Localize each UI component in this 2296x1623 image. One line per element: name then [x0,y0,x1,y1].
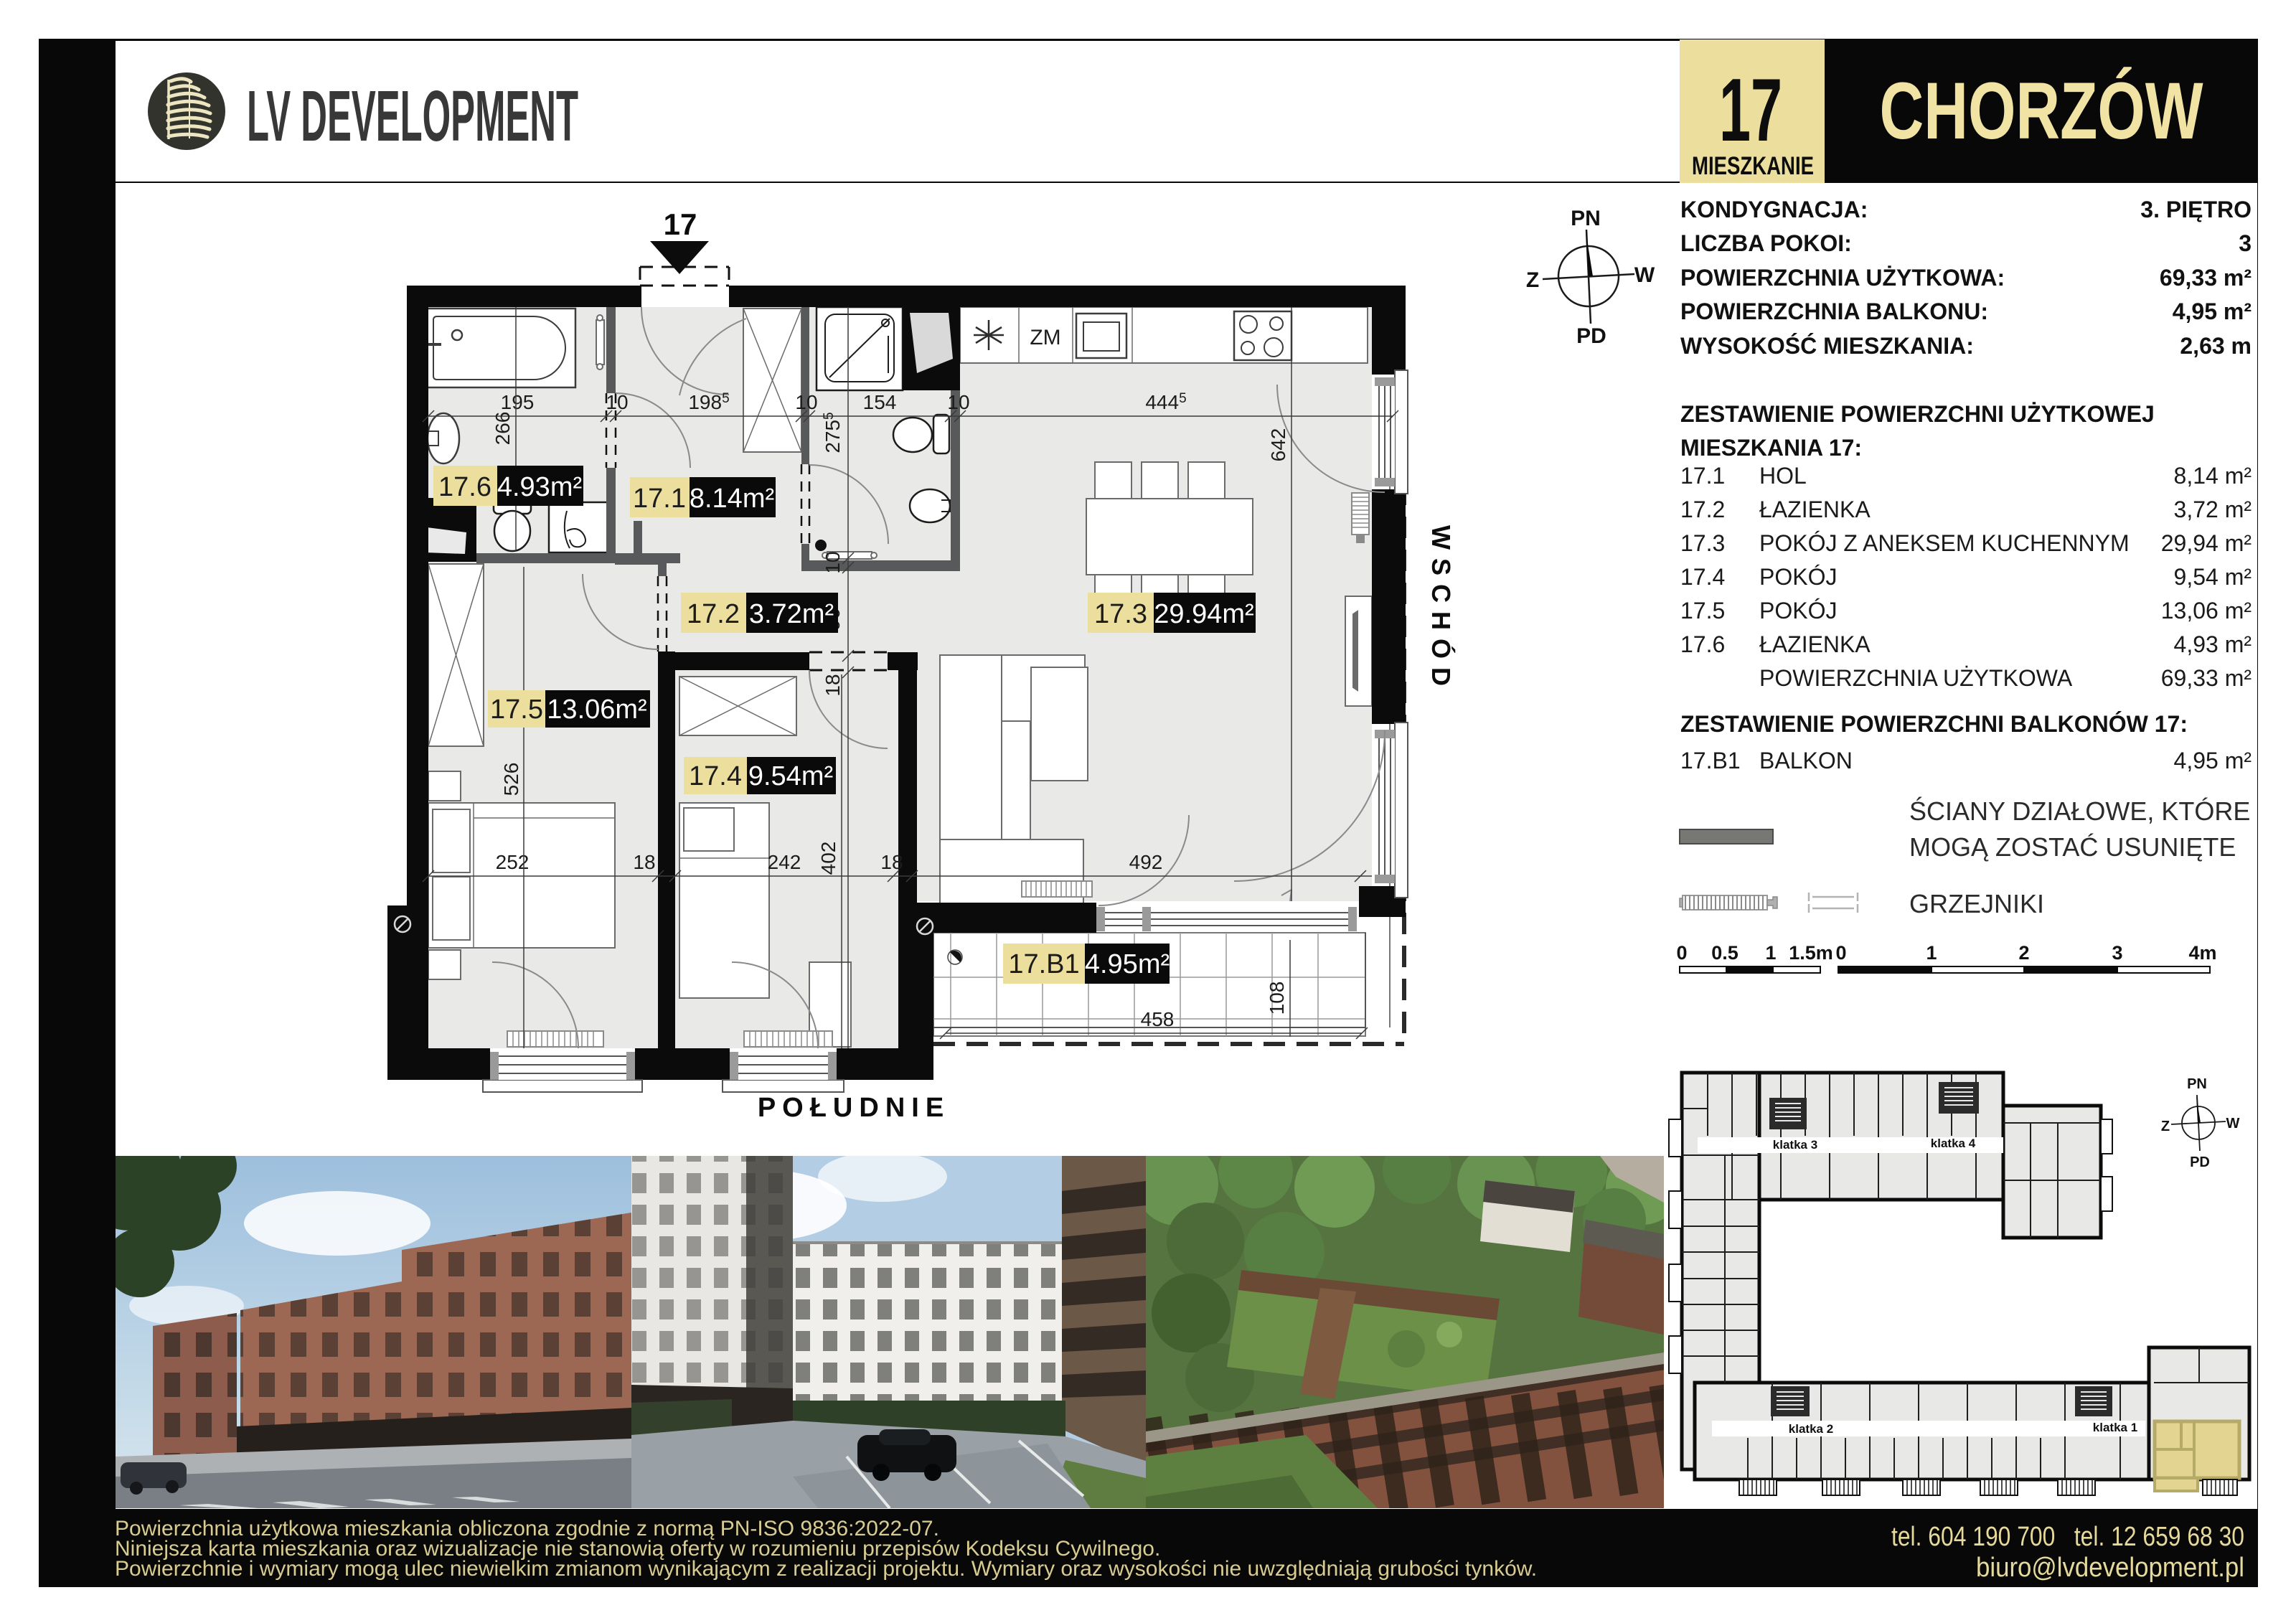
svg-text:17.5: 17.5 [490,695,543,725]
svg-text:klatka 1: klatka 1 [2093,1421,2137,1434]
svg-text:17.1: 17.1 [1680,463,1725,489]
svg-text:0.5: 0.5 [1711,942,1739,964]
svg-text:PD: PD [1576,324,1606,348]
svg-text:17.B1: 17.B1 [1008,949,1079,979]
svg-text:18: 18 [880,851,903,873]
svg-text:klatka 2: klatka 2 [1789,1422,1833,1436]
svg-text:3. PIĘTRO: 3. PIĘTRO [2140,197,2252,222]
svg-text:29.94m²: 29.94m² [1154,599,1253,629]
svg-text:17.6: 17.6 [1680,631,1725,657]
svg-text:POWIERZCHNIA UŻYTKOWA: POWIERZCHNIA UŻYTKOWA [1759,665,2073,691]
svg-text:17.3: 17.3 [1680,530,1725,556]
svg-text:ZM: ZM [1030,326,1060,349]
svg-text:4,95 m²: 4,95 m² [2173,298,2252,324]
svg-text:13,06 m²: 13,06 m² [2161,598,2252,624]
svg-text:CHORZÓW: CHORZÓW [1880,66,2203,156]
svg-text:17.3: 17.3 [1094,599,1147,629]
svg-text:17.4: 17.4 [1680,564,1725,590]
svg-text:GRZEJNIKI: GRZEJNIKI [1909,889,2044,918]
svg-text:17: 17 [1719,61,1782,160]
svg-text:9,54 m²: 9,54 m² [2174,564,2252,590]
svg-text:18: 18 [633,851,655,873]
svg-text:458: 458 [1141,1008,1175,1030]
svg-text:17.6: 17.6 [438,472,491,502]
svg-text:2: 2 [2018,942,2029,964]
svg-text:4,93 m²: 4,93 m² [2174,631,2252,657]
svg-text:klatka 4: klatka 4 [1931,1137,1976,1150]
svg-text:MIESZKANIE: MIESZKANIE [1692,152,1814,180]
svg-text:ŁAZIENKA: ŁAZIENKA [1759,631,1871,657]
svg-text:Powierzchnie i wymiary mogą ul: Powierzchnie i wymiary mogą ulec niewiel… [115,1557,1537,1581]
svg-text:10: 10 [822,551,844,573]
svg-text:LV DEVELOPMENT: LV DEVELOPMENT [247,76,578,156]
svg-text:17.5: 17.5 [1680,598,1725,624]
svg-text:8.14m²: 8.14m² [690,484,774,514]
svg-text:69,33 m²: 69,33 m² [2161,665,2252,691]
svg-text:WYSOKOŚĆ MIESZKANIA:: WYSOKOŚĆ MIESZKANIA: [1680,333,1974,359]
svg-text:0: 0 [1835,942,1846,964]
svg-text:LICZBA POKOI:: LICZBA POKOI: [1680,230,1852,256]
svg-text:PN: PN [2187,1076,2207,1092]
svg-text:10: 10 [606,391,628,413]
svg-text:266: 266 [491,412,514,446]
svg-text:3: 3 [2112,942,2122,964]
svg-text:ŚCIANY DZIAŁOWE, KTÓRE: ŚCIANY DZIAŁOWE, KTÓRE [1909,796,2250,826]
svg-text:tel. 604 190 700 tel. 12 659: tel. 604 190 700 tel. 12 659 68 30 [1891,1522,2244,1552]
svg-text:KONDYGNACJA:: KONDYGNACJA: [1680,197,1868,222]
svg-text:POŁUDNIE: POŁUDNIE [758,1093,950,1123]
svg-text:klatka 3: klatka 3 [1773,1138,1817,1152]
svg-text:3,72 m²: 3,72 m² [2174,497,2252,522]
svg-text:HOL: HOL [1759,463,1807,489]
svg-text:4,95 m²: 4,95 m² [2174,748,2252,773]
svg-text:17.2: 17.2 [1680,497,1725,522]
svg-text:WSCHÓD: WSCHÓD [1426,525,1457,695]
svg-text:Z: Z [1526,268,1539,292]
svg-text:17.B1: 17.B1 [1680,748,1741,773]
svg-text:PD: PD [2190,1154,2210,1170]
svg-text:10: 10 [947,391,969,413]
svg-text:W: W [1634,263,1655,287]
svg-text:17.4: 17.4 [689,761,742,791]
svg-text:biuro@lvdevelopment.pl: biuro@lvdevelopment.pl [1976,1553,2244,1583]
svg-text:4.93m²: 4.93m² [497,472,582,502]
svg-text:1.5m: 1.5m [1789,942,1833,964]
svg-text:POWIERZCHNIA BALKONU:: POWIERZCHNIA BALKONU: [1680,298,1988,324]
svg-text:17.2: 17.2 [687,599,740,629]
svg-text:642: 642 [1267,428,1289,462]
svg-text:W: W [2226,1116,2240,1132]
svg-text:ZESTAWIENIE POWIERZCHNI BALKON: ZESTAWIENIE POWIERZCHNI BALKONÓW 17: [1680,711,2188,737]
svg-text:MOGĄ ZOSTAĆ USUNIĘTE: MOGĄ ZOSTAĆ USUNIĘTE [1909,832,2236,862]
svg-text:POKÓJ: POKÓJ [1759,598,1837,624]
svg-text:10: 10 [795,391,817,413]
svg-text:17.1: 17.1 [633,484,686,514]
svg-text:9.54m²: 9.54m² [748,761,833,791]
svg-text:108: 108 [1266,982,1288,1015]
svg-text:18: 18 [822,674,844,696]
svg-text:13.06m²: 13.06m² [547,695,646,725]
svg-text:ŁAZIENKA: ŁAZIENKA [1759,497,1871,522]
svg-text:402: 402 [817,842,839,875]
svg-text:POKÓJ Z ANEKSEM KUCHENNYM: POKÓJ Z ANEKSEM KUCHENNYM [1759,530,2130,556]
svg-text:PN: PN [1571,207,1601,230]
svg-text:MIESZKANIA 17:: MIESZKANIA 17: [1680,435,1862,461]
svg-text:2,63 m: 2,63 m [2180,333,2252,359]
svg-text:3.72m²: 3.72m² [749,599,834,629]
svg-text:ZESTAWIENIE POWIERZCHNI UŻYTKO: ZESTAWIENIE POWIERZCHNI UŻYTKOWEJ [1680,401,2155,427]
svg-text:154: 154 [863,391,897,413]
svg-text:8,14 m²: 8,14 m² [2174,463,2252,489]
svg-text:4.95m²: 4.95m² [1085,949,1170,979]
svg-text:3: 3 [2239,230,2252,256]
svg-text:195: 195 [501,391,535,413]
svg-text:242: 242 [768,851,801,873]
svg-text:526: 526 [500,763,522,796]
svg-text:17: 17 [664,207,697,241]
svg-text:BALKON: BALKON [1759,748,1853,773]
svg-text:69,33 m²: 69,33 m² [2160,265,2252,291]
svg-text:4m: 4m [2188,942,2216,964]
svg-text:POKÓJ: POKÓJ [1759,564,1837,590]
svg-text:29,94 m²: 29,94 m² [2161,530,2252,556]
svg-text:492: 492 [1129,851,1163,873]
svg-text:1: 1 [1765,942,1776,964]
svg-text:0: 0 [1676,942,1687,964]
svg-text:Z: Z [2161,1119,2170,1134]
svg-text:1: 1 [1926,942,1937,964]
svg-text:POWIERZCHNIA UŻYTKOWA:: POWIERZCHNIA UŻYTKOWA: [1680,265,2005,291]
